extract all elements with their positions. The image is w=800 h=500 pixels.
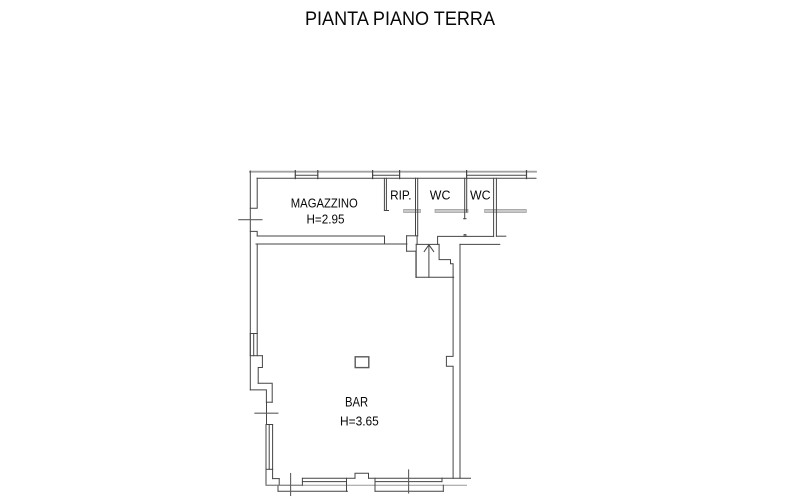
svg-text:H=2.95: H=2.95	[307, 211, 345, 226]
svg-text:MAGAZZINO: MAGAZZINO	[291, 196, 358, 211]
svg-text:PIANTA PIANO TERRA: PIANTA PIANO TERRA	[305, 8, 496, 30]
svg-text:RIP.: RIP.	[390, 189, 411, 203]
svg-text:WC: WC	[430, 187, 451, 202]
svg-text:WC: WC	[470, 187, 491, 202]
svg-text:H=3.65: H=3.65	[340, 414, 379, 429]
svg-text:BAR: BAR	[345, 394, 368, 409]
